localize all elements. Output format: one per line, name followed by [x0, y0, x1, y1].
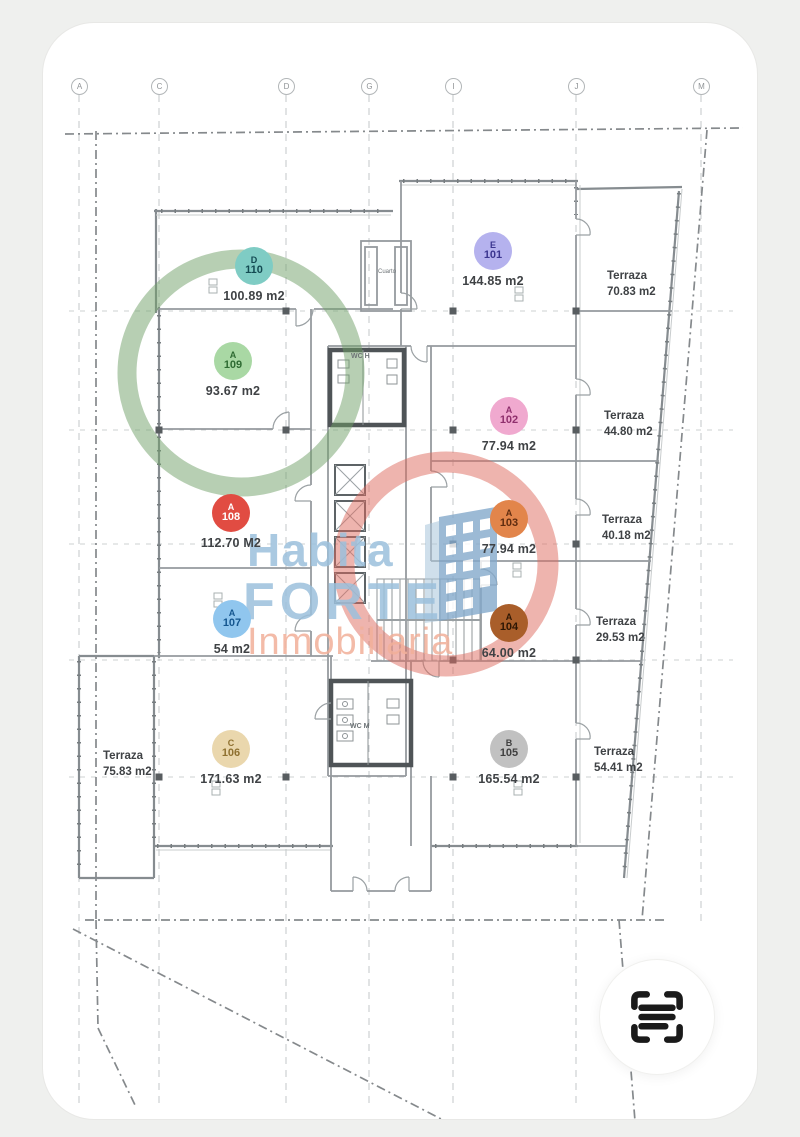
- unit-badge[interactable]: B 105: [490, 730, 528, 768]
- unit-area-label: 165.54 m2: [461, 772, 557, 786]
- grid-letter-g: G: [361, 78, 378, 95]
- terraza-area: 70.83 m2: [607, 285, 656, 301]
- unit-number: 108: [222, 512, 240, 524]
- unit-marker-104[interactable]: A 104 64.00 m2: [490, 604, 528, 642]
- unit-badge[interactable]: A 103: [490, 500, 528, 538]
- page-background: { "grid_letters": [ {"label": "A"}, {"la…: [0, 0, 800, 1137]
- terraza-area: 29.53 m2: [596, 631, 645, 647]
- unit-number: 101: [484, 250, 502, 262]
- unit-marker-109[interactable]: A 109 93.67 m2: [214, 342, 252, 380]
- unit-area-label: 171.63 m2: [183, 772, 279, 786]
- unit-area-label: 144.85 m2: [445, 274, 541, 288]
- unit-area-label: 64.00 m2: [461, 646, 557, 660]
- unit-badge[interactable]: E 101: [474, 232, 512, 270]
- terraza-area: 54.41 m2: [594, 761, 643, 777]
- grid-letter-i: I: [445, 78, 462, 95]
- grid-letter-m: M: [693, 78, 710, 95]
- unit-number: 104: [500, 622, 518, 634]
- wc-h-label: WC H: [351, 353, 370, 360]
- unit-number: 110: [245, 265, 263, 277]
- unit-area-label: 93.67 m2: [185, 384, 281, 398]
- unit-area-label: 77.94 m2: [461, 439, 557, 453]
- terraza-label-1: Terraza 70.83 m2: [607, 269, 656, 300]
- terraza-label-2: Terraza 44.80 m2: [604, 409, 653, 440]
- unit-marker-106[interactable]: C 106 171.63 m2: [212, 730, 250, 768]
- unit-number: 106: [222, 748, 240, 760]
- unit-area-label: 54 m2: [184, 642, 280, 656]
- terraza-name: Terraza: [607, 269, 656, 285]
- wc-m-label: WC M: [350, 723, 369, 730]
- terraza-name: Terraza: [604, 409, 653, 425]
- unit-badge[interactable]: A 104: [490, 604, 528, 642]
- unit-badge[interactable]: C 106: [212, 730, 250, 768]
- unit-marker-108[interactable]: A 108 112.70 M2: [212, 494, 250, 532]
- terraza-area: 44.80 m2: [604, 425, 653, 441]
- unit-badge[interactable]: D 110: [235, 247, 273, 285]
- scan-icon: [620, 980, 694, 1054]
- shaft-room-label: Cuarto: [369, 269, 405, 275]
- unit-badge[interactable]: A 108: [212, 494, 250, 532]
- terraza-area: 40.18 m2: [602, 529, 651, 545]
- unit-marker-101[interactable]: E 101 144.85 m2: [474, 232, 512, 270]
- unit-area-label: 112.70 M2: [183, 536, 279, 550]
- terraza-label-3: Terraza 40.18 m2: [602, 513, 651, 544]
- terraza-label-6: Terraza 75.83 m2: [103, 749, 152, 780]
- unit-number: 103: [500, 518, 518, 530]
- grid-letter-a: A: [71, 78, 88, 95]
- unit-marker-110[interactable]: D 110 100.89 m2: [235, 247, 273, 285]
- unit-number: 109: [224, 360, 242, 372]
- terraza-area: 75.83 m2: [103, 765, 152, 781]
- unit-marker-102[interactable]: A 102 77.94 m2: [490, 397, 528, 435]
- watermark-habita: Habita: [247, 523, 394, 577]
- unit-badge[interactable]: A 109: [214, 342, 252, 380]
- terraza-name: Terraza: [103, 749, 152, 765]
- unit-marker-103[interactable]: A 103 77.94 m2: [490, 500, 528, 538]
- unit-area-label: 100.89 m2: [206, 289, 302, 303]
- unit-number: 102: [500, 415, 518, 427]
- terraza-label-4: Terraza 29.53 m2: [596, 615, 645, 646]
- terraza-name: Terraza: [596, 615, 645, 631]
- grid-letter-d: D: [278, 78, 295, 95]
- scan-button[interactable]: [599, 959, 715, 1075]
- unit-badge[interactable]: A 107: [213, 600, 251, 638]
- terraza-name: Terraza: [594, 745, 643, 761]
- unit-number: 107: [223, 618, 241, 630]
- grid-letter-c: C: [151, 78, 168, 95]
- unit-number: 105: [500, 748, 518, 760]
- terraza-label-5: Terraza 54.41 m2: [594, 745, 643, 776]
- grid-letter-j: J: [568, 78, 585, 95]
- unit-marker-105[interactable]: B 105 165.54 m2: [490, 730, 528, 768]
- unit-marker-107[interactable]: A 107 54 m2: [213, 600, 251, 638]
- unit-badge[interactable]: A 102: [490, 397, 528, 435]
- floorplan-card: Habita FORTE Inmobiliaria A C D G I J M …: [42, 22, 758, 1120]
- unit-area-label: 77.94 m2: [461, 542, 557, 556]
- terraza-name: Terraza: [602, 513, 651, 529]
